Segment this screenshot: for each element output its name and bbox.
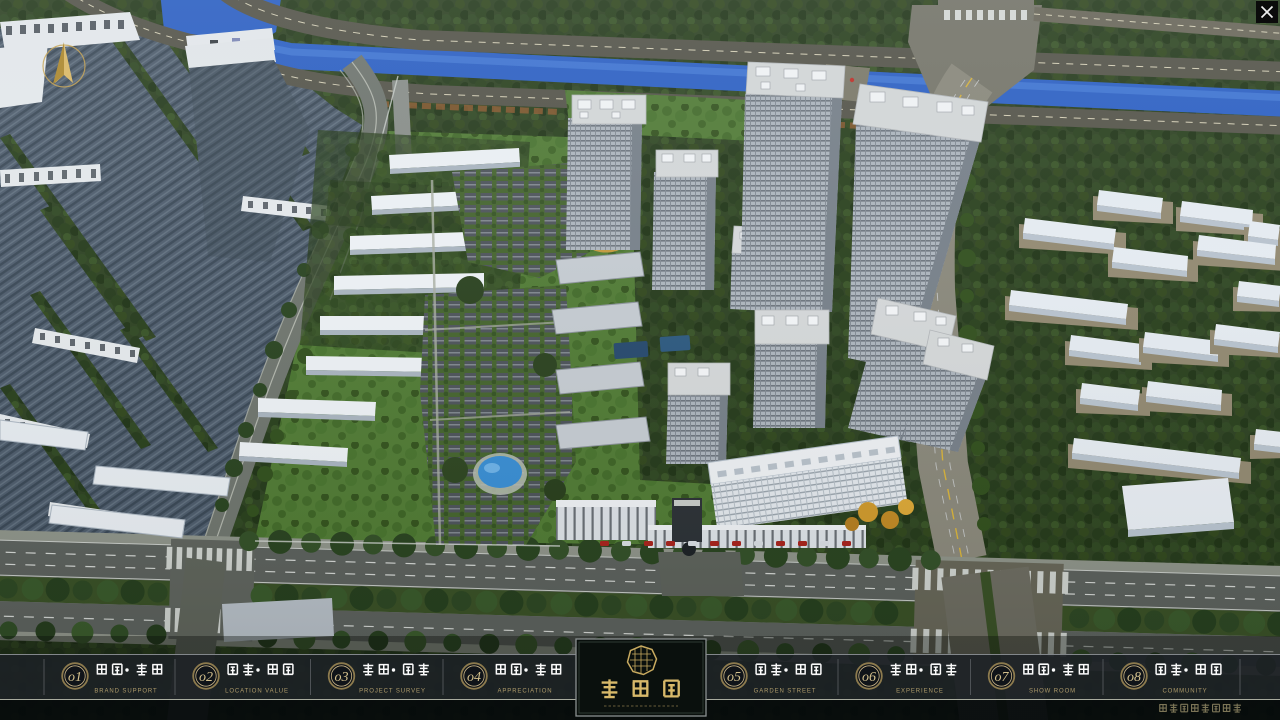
svg-text:o7: o7 bbox=[995, 670, 1010, 685]
svg-text:o1: o1 bbox=[68, 670, 82, 685]
svg-text:PROJECT SURVEY: PROJECT SURVEY bbox=[359, 689, 426, 695]
svg-text:COMMUNITY: COMMUNITY bbox=[1162, 689, 1207, 695]
svg-text:o4: o4 bbox=[467, 670, 481, 685]
svg-text:o5: o5 bbox=[727, 670, 741, 685]
svg-text:o8: o8 bbox=[1127, 670, 1141, 685]
svg-text:GARDEN STREET: GARDEN STREET bbox=[754, 689, 817, 695]
svg-text:o2: o2 bbox=[199, 670, 213, 685]
svg-text:SHOW ROOM: SHOW ROOM bbox=[1029, 689, 1076, 695]
svg-text:o6: o6 bbox=[862, 670, 876, 685]
svg-text:BRAND SUPPORT: BRAND SUPPORT bbox=[94, 689, 157, 695]
svg-text:o3: o3 bbox=[335, 670, 349, 685]
svg-text:APPRECIATION: APPRECIATION bbox=[497, 689, 552, 695]
svg-text:EXPERIENCE: EXPERIENCE bbox=[896, 689, 944, 695]
svg-text:LOCATION VALUE: LOCATION VALUE bbox=[225, 689, 289, 695]
